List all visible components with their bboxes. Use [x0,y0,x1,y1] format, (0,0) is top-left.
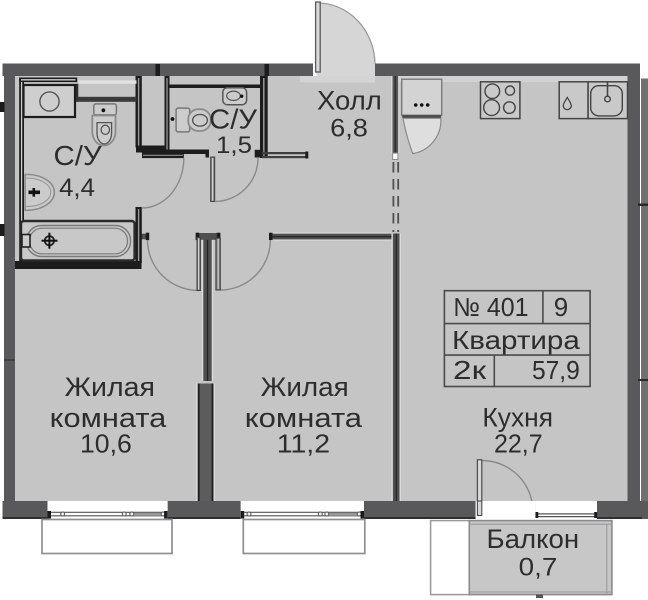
svg-text:9: 9 [554,292,568,322]
svg-text:11,2: 11,2 [277,429,330,459]
svg-text:Жилая: Жилая [261,372,349,402]
svg-text:6,8: 6,8 [330,115,368,143]
svg-text:57,9: 57,9 [532,355,580,385]
svg-text:1,5: 1,5 [216,132,252,159]
svg-text:Жилая: Жилая [65,372,155,402]
svg-text:Квартира: Квартира [452,325,580,355]
svg-text:Балкон: Балкон [487,524,580,554]
svg-text:С/У: С/У [54,140,102,171]
svg-text:4,4: 4,4 [59,174,95,202]
svg-text:№ 401: № 401 [453,292,528,322]
svg-text:Холл: Холл [317,85,382,115]
svg-text:2к: 2к [453,355,487,385]
svg-text:С/У: С/У [209,104,257,135]
svg-text:22,7: 22,7 [494,429,543,459]
svg-text:0,7: 0,7 [519,554,558,582]
svg-text:10,6: 10,6 [80,429,132,459]
